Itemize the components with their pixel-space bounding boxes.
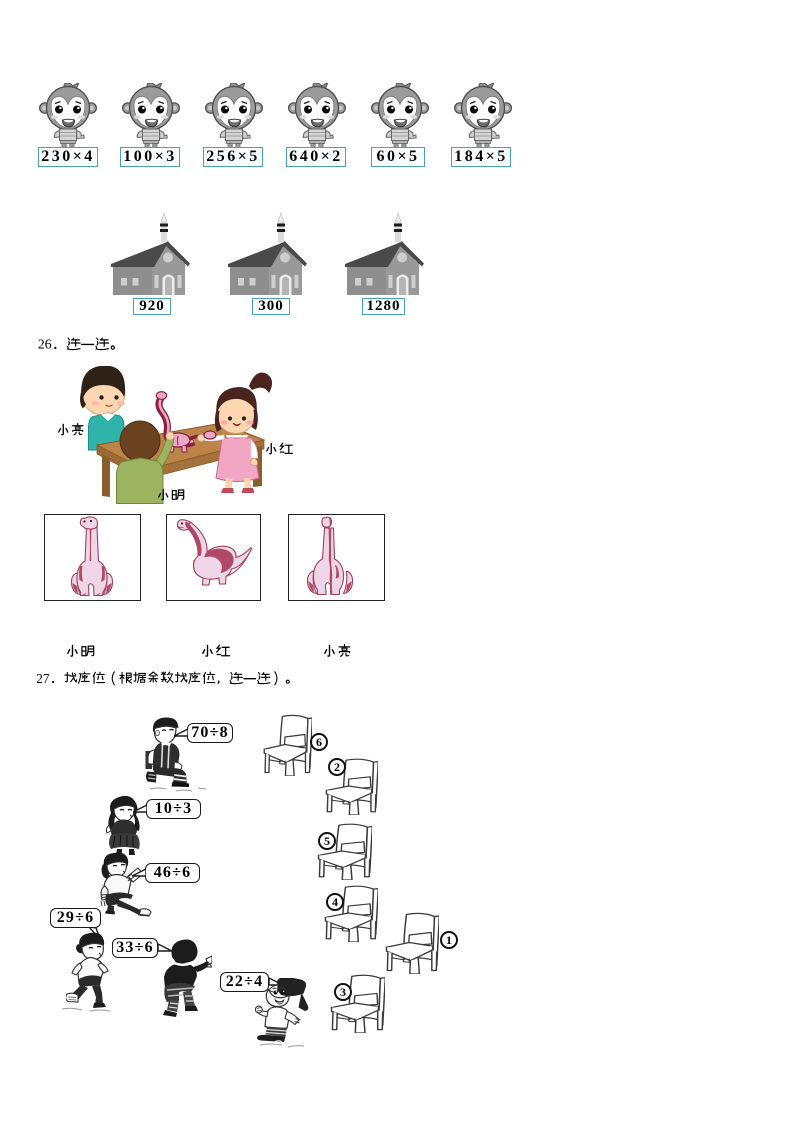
svg-text:27: 27 [36, 671, 50, 686]
svg-text:26: 26 [38, 337, 52, 352]
